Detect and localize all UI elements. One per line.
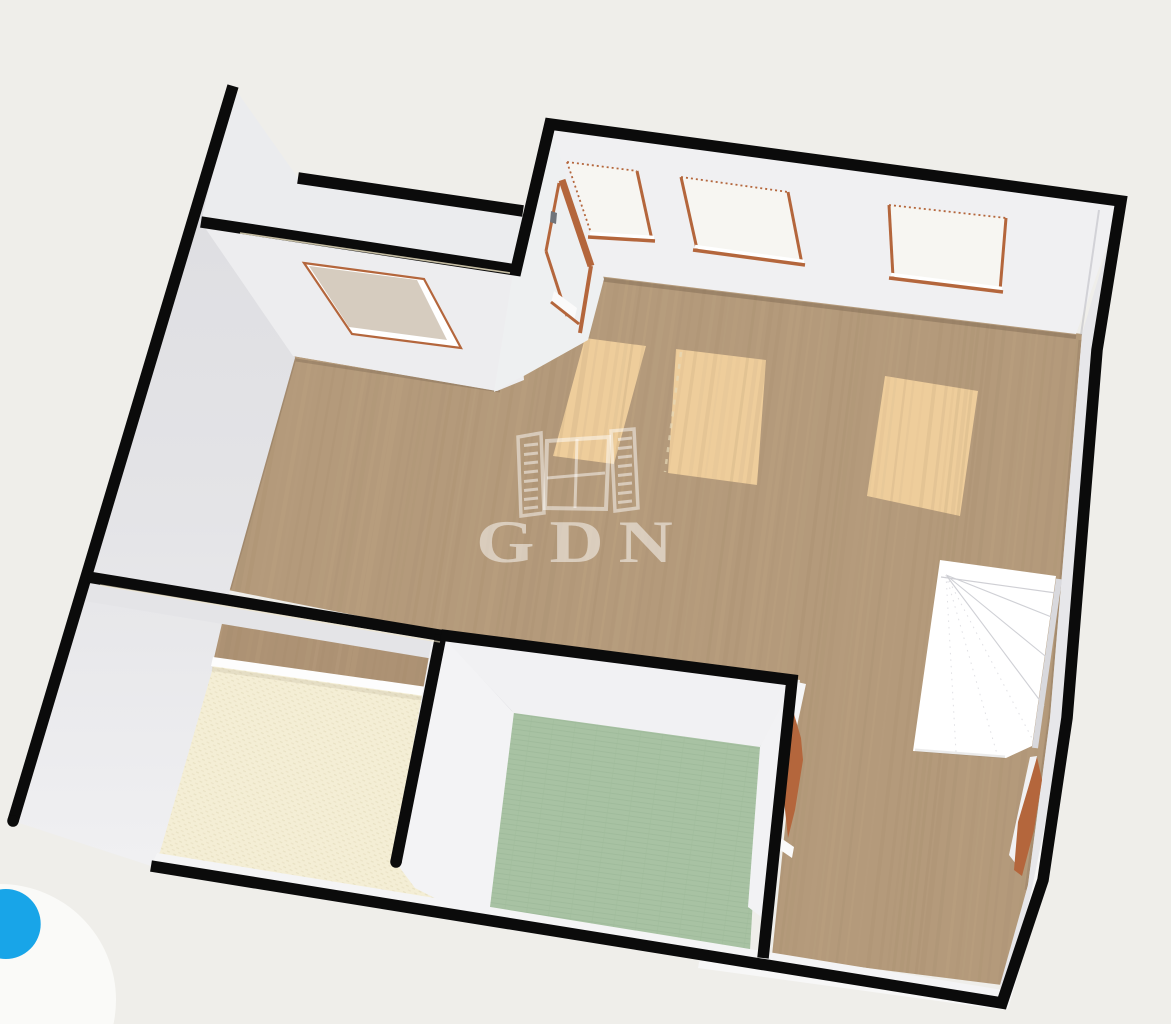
svg-text:GDN: GDN <box>476 508 688 575</box>
